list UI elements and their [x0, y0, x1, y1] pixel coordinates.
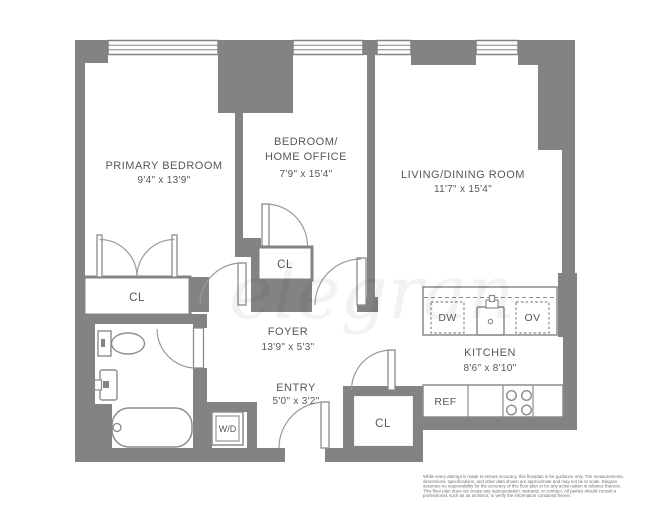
kitchen-passage-door-leaf	[388, 350, 395, 390]
living-dining-dims: 11'7" x 15'4"	[434, 184, 492, 195]
office-closet-door-leaf	[262, 204, 269, 246]
primary-bedroom-label: PRIMARY BEDROOM	[105, 160, 222, 172]
window-primary-bedroom	[108, 41, 218, 55]
kitchen-label: KITCHEN	[464, 347, 516, 359]
entry-label: ENTRY	[276, 382, 316, 394]
disclaimer-line-5: professional, such as an architect, to v…	[423, 493, 571, 498]
window-living-small	[377, 41, 411, 55]
entry-dims: 5'0" x 3'2"	[272, 396, 319, 407]
primary-closet-door-left-leaf	[97, 235, 102, 277]
bathtub	[108, 408, 192, 447]
wall-bottom	[75, 448, 423, 462]
foyer-dims: 13'9" x 5'3"	[262, 342, 315, 353]
wall-right-kitchen	[563, 337, 577, 417]
wall-wd-right	[247, 402, 257, 448]
wall-kitchen-bottom	[410, 417, 577, 430]
floorplan-page: PRIMARY BEDROOM 9'4" x 13'9" BEDROOM/ HO…	[0, 0, 650, 520]
living-dining-label: LIVING/DINING ROOM	[401, 169, 525, 181]
wall-entry-closet-left	[343, 386, 353, 448]
home-office-label-line2: HOME OFFICE	[265, 151, 347, 163]
wall-right-thin	[562, 150, 575, 273]
entry-door-leaf	[321, 402, 329, 448]
entry-closet-label: CL	[375, 418, 391, 430]
wall-top-separator	[363, 40, 377, 55]
washer-dryer-label: W/D	[219, 424, 237, 434]
wall-entry-closet-right	[414, 386, 423, 462]
refrigerator-label: REF	[434, 396, 456, 408]
home-office-dims: 7'9" x 15'4"	[280, 169, 333, 180]
primary-bedroom-dims: 9'4" x 13'9"	[138, 175, 191, 186]
toilet	[98, 331, 145, 356]
home-office-label-line1: BEDROOM/	[274, 136, 338, 148]
wall-entry-closet-top	[343, 386, 417, 395]
watermark-logo: elegran	[229, 250, 515, 336]
floorplan-drawing: PRIMARY BEDROOM 9'4" x 13'9" BEDROOM/ HO…	[0, 0, 650, 520]
wall-top-center-block	[218, 40, 293, 113]
window-home-office	[293, 41, 363, 55]
wall-topright-corner	[518, 40, 575, 65]
oven-label: OV	[525, 312, 541, 324]
wall-top-living-block	[411, 40, 476, 65]
bathroom-door-leaf	[194, 328, 204, 368]
wall-left-bathroom	[85, 314, 95, 462]
wall-topleft-corner	[75, 40, 108, 63]
entry-door-opening	[285, 448, 325, 462]
wall-right-kitchen-upper	[558, 273, 577, 337]
primary-closet-door-right-leaf	[172, 235, 177, 277]
wall-wd-left	[202, 402, 212, 448]
wall-right-column	[538, 65, 575, 150]
wall-bedroom-office	[235, 113, 243, 243]
window-living-large	[476, 41, 518, 55]
wall-left	[75, 40, 85, 462]
primary-closet-label: CL	[129, 292, 145, 304]
kitchen-dims: 8'6" x 8'10"	[464, 363, 517, 374]
